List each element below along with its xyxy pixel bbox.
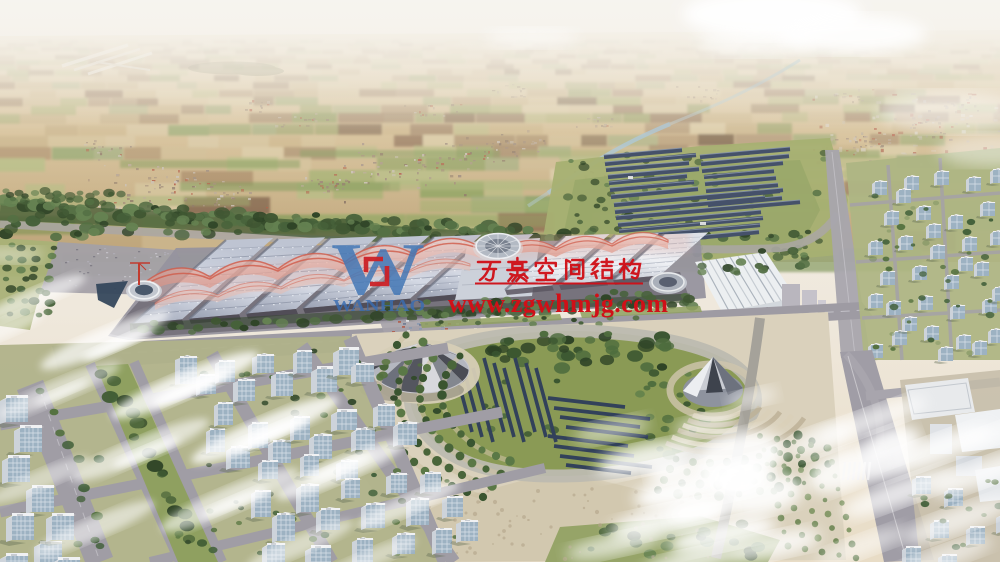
svg-text:WANHAO: WANHAO	[333, 296, 425, 315]
svg-text:www.zgwhmjg.com: www.zgwhmjg.com	[448, 289, 668, 318]
